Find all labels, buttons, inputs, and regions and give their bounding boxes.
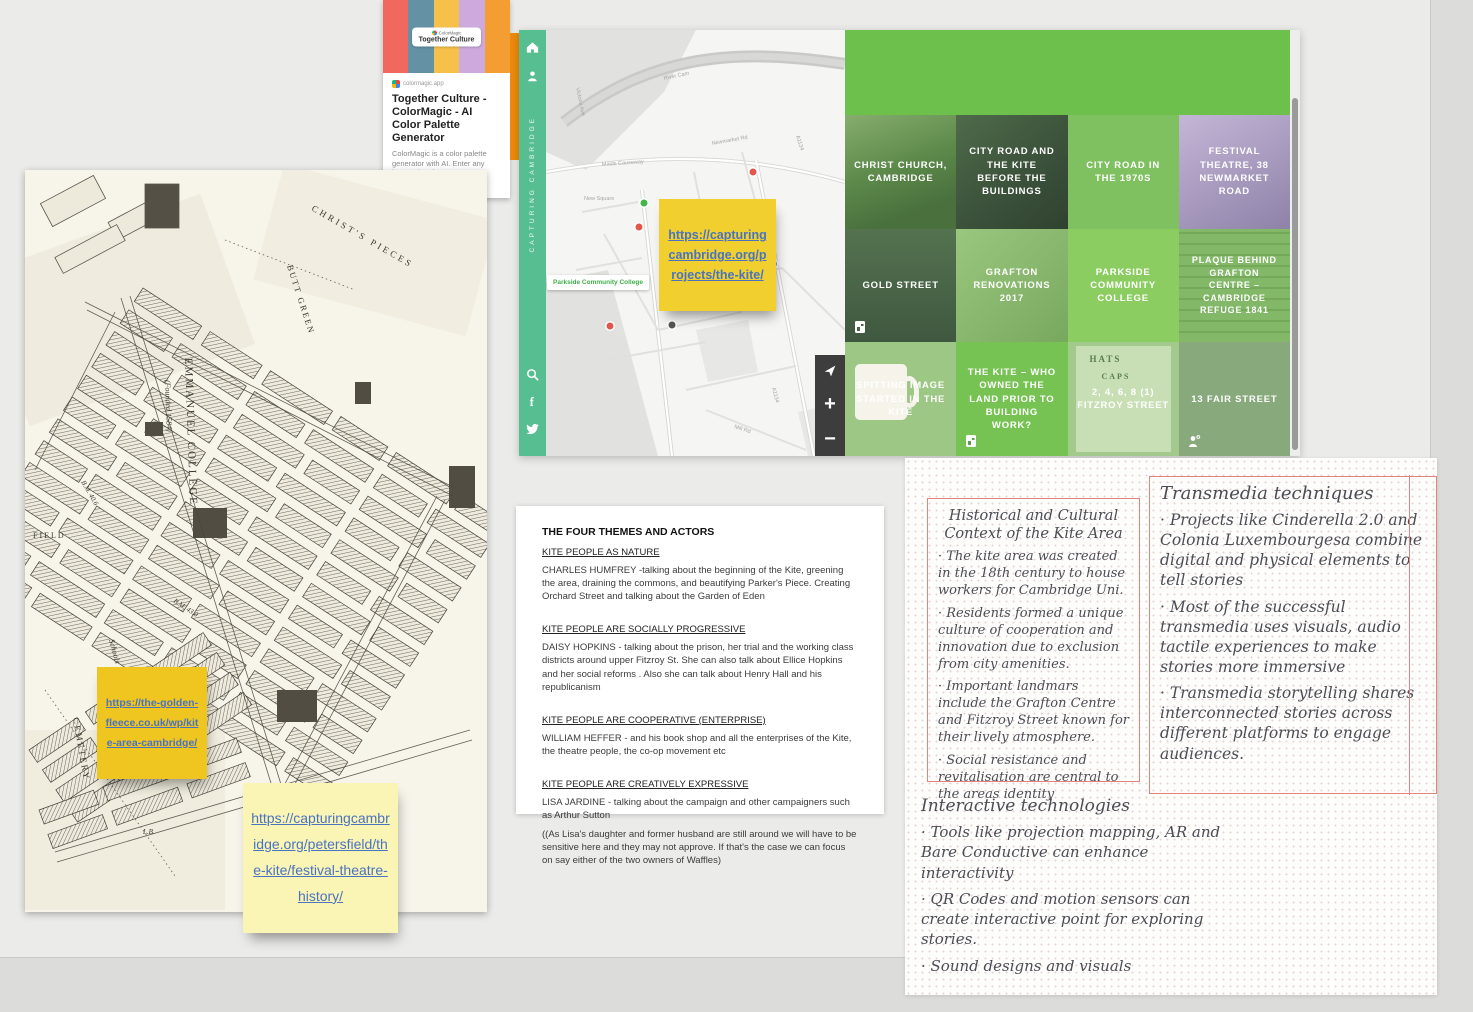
section-body: LISA JARDINE - talking about the campaig…: [542, 796, 858, 822]
palette-label: ColorMagic Together Culture: [412, 27, 482, 46]
compass-icon[interactable]: [822, 363, 838, 379]
golden-fleece-link[interactable]: https://the-golden-fleece.co.uk/wp/kite-…: [106, 697, 199, 749]
section-body: CHARLES HUMFREY -talking about the begin…: [542, 564, 858, 603]
tile-title: CITY ROAD IN THE 1970S: [1068, 115, 1179, 229]
svg-text:f: f: [530, 395, 535, 409]
gallery-tile[interactable]: GRAFTON RENOVATIONS 2017: [956, 229, 1067, 343]
gallery-tile[interactable]: CHRIST CHURCH, CAMBRIDGE: [845, 115, 956, 229]
color-palette-image: ColorMagic Together Culture: [383, 0, 510, 73]
palette-name: Together Culture: [419, 36, 475, 43]
interactive-notes-title: Interactive technologies: [921, 796, 1241, 816]
gallery-tile[interactable]: HATS CAPS 2, 4, 6, 8 (1) FITZROY STREET: [1068, 342, 1179, 456]
section-heading: KITE PEOPLE AS NATURE: [542, 547, 858, 558]
projects-link[interactable]: https://capturingcambridge.org/projects/…: [668, 228, 767, 282]
note-bullet: · Important landmars include the Grafton…: [938, 679, 1129, 747]
twitter-icon[interactable]: [525, 421, 540, 436]
gallery-tile[interactable]: FESTIVAL THEATRE, 38 NEWMARKET ROAD: [1179, 115, 1290, 229]
note-bullet: · Most of the successful transmedia uses…: [1160, 597, 1426, 678]
interactive-notes-block: Interactive technologies · Tools like pr…: [921, 796, 1241, 976]
map-marker-red[interactable]: [635, 223, 643, 231]
gallery-tile[interactable]: SPITTING IMAGE STARTED IN THE KITE: [845, 342, 956, 456]
oldmap-lb-label: L.B.: [142, 828, 155, 836]
section-heading: KITE PEOPLE ARE SOCIALLY PROGRESSIVE: [542, 624, 858, 635]
gallery-tile[interactable]: THE KITE – WHO OWNED THE LAND PRIOR TO B…: [956, 342, 1067, 456]
street-label: New Square: [584, 196, 614, 202]
note-bullet: · Residents formed a unique culture of c…: [938, 606, 1129, 674]
gallery-tile[interactable]: CITY ROAD AND THE KITE BEFORE THE BUILDI…: [956, 115, 1067, 229]
sticky-note-golden-fleece-url[interactable]: https://the-golden-fleece.co.uk/wp/kite-…: [97, 667, 207, 779]
tile-title: SPITTING IMAGE STARTED IN THE KITE: [845, 342, 956, 456]
map-marker-red[interactable]: [606, 322, 614, 330]
gallery-tile[interactable]: CITY ROAD IN THE 1970S: [1068, 115, 1179, 229]
historical-notes-frame: Historical and Cultural Context of the K…: [927, 498, 1140, 782]
section-heading: KITE PEOPLE ARE CREATIVELY EXPRESSIVE: [542, 779, 858, 790]
home-icon[interactable]: [525, 40, 540, 55]
transmedia-notes-frame: Transmedia techniques · Projects like Ci…: [1149, 476, 1437, 794]
article-icon: [964, 434, 978, 448]
frame-inner-line: [1409, 475, 1411, 795]
section-body: ((As Lisa's daughter and former husband …: [542, 828, 858, 867]
gallery-tile[interactable]: PLAQUE BEHIND GRAFTON CENTRE – CAMBRIDGE…: [1179, 229, 1290, 343]
map-controls: + −: [815, 355, 845, 456]
tile-title: GRAFTON RENOVATIONS 2017: [956, 229, 1067, 343]
section-body: DAISY HOPKINS - talking about the prison…: [542, 641, 858, 693]
person-icon: [1187, 434, 1201, 448]
document-title: THE FOUR THEMES AND ACTORS: [542, 526, 858, 538]
map-place-label[interactable]: Parkside Community College: [547, 275, 649, 290]
zoom-out-button[interactable]: −: [824, 429, 836, 449]
zoom-in-button[interactable]: +: [824, 394, 836, 414]
scrollbar-track[interactable]: [1290, 30, 1300, 456]
site-domain: colormagic.app: [403, 81, 444, 87]
four-themes-document[interactable]: THE FOUR THEMES AND ACTORS KITE PEOPLE A…: [516, 506, 884, 814]
tile-title: PLAQUE BEHIND GRAFTON CENTRE – CAMBRIDGE…: [1179, 229, 1290, 343]
section-body: WILLIAM HEFFER - and his book shop and a…: [542, 732, 858, 758]
oldmap-college-sub-label: (Founded 1584): [163, 380, 174, 432]
brand-name: ColorMagic: [439, 30, 462, 35]
note-bullet: · Projects like Cinderella 2.0 and Colon…: [1160, 510, 1426, 591]
note-bullet: · Sound designs and visuals: [921, 956, 1241, 976]
person-pin-icon[interactable]: [525, 69, 540, 84]
map-marker-red[interactable]: [749, 168, 757, 176]
site-favicon-icon: [392, 80, 400, 88]
whiteboard-canvas[interactable]: ColorMagic Together Culture colormagic.a…: [0, 0, 1473, 1012]
section-heading: KITE PEOPLE ARE COOPERATIVE (ENTERPRISE): [542, 715, 858, 726]
map-marker-dark[interactable]: [668, 321, 676, 329]
tile-title: PARKSIDE COMMUNITY COLLEGE: [1068, 229, 1179, 343]
scrollbar-thumb[interactable]: [1292, 98, 1298, 450]
note-bullet: · The kite area was created in the 18th …: [938, 549, 1129, 600]
palette-swatch: [383, 0, 408, 73]
colormagic-link-card[interactable]: ColorMagic Together Culture colormagic.a…: [383, 0, 510, 198]
search-icon[interactable]: [525, 367, 540, 382]
site-title-vertical: CAPTURING CAMBRIDGE: [529, 116, 536, 252]
note-bullet: · Tools like projection mapping, AR and …: [921, 822, 1241, 883]
gallery-tile[interactable]: PARKSIDE COMMUNITY COLLEGE: [1068, 229, 1179, 343]
article-icon: [853, 320, 867, 334]
tile-title: CITY ROAD AND THE KITE BEFORE THE BUILDI…: [956, 115, 1067, 229]
tile-title: 2, 4, 6, 8 (1) FITZROY STREET: [1068, 342, 1179, 456]
colormagic-logo-icon: [432, 30, 437, 35]
orange-accent-strip: [510, 33, 519, 160]
handwritten-notes-panel[interactable]: Historical and Cultural Context of the K…: [905, 458, 1437, 995]
tile-title: FESTIVAL THEATRE, 38 NEWMARKET ROAD: [1179, 115, 1290, 229]
historical-notes-title: Historical and Cultural Context of the K…: [938, 507, 1129, 543]
tile-title: CHRIST CHURCH, CAMBRIDGE: [845, 115, 956, 229]
sticky-note-projects-url[interactable]: https://capturingcambridge.org/projects/…: [659, 199, 776, 311]
note-bullet: · Transmedia storytelling shares interco…: [1160, 683, 1426, 764]
oldmap-field-label: FIELD: [33, 531, 66, 540]
transmedia-notes-title: Transmedia techniques: [1160, 483, 1426, 504]
capturing-cambridge-screenshot[interactable]: CAPTURING CAMBRIDGE f: [519, 30, 1300, 456]
map-marker-green[interactable]: [640, 199, 648, 207]
photo-gallery: CHRIST CHURCH, CAMBRIDGE CITY ROAD AND T…: [845, 30, 1290, 456]
festival-theatre-link[interactable]: https://capturingcambridge.org/petersfie…: [251, 810, 390, 904]
sticky-note-festival-theatre-url[interactable]: https://capturingcambridge.org/petersfie…: [243, 783, 398, 933]
palette-swatch: [485, 0, 510, 73]
site-sidebar: CAPTURING CAMBRIDGE f: [519, 30, 546, 456]
card-title[interactable]: Together Culture - ColorMagic - AI Color…: [392, 93, 501, 145]
facebook-icon[interactable]: f: [525, 394, 540, 409]
note-bullet: · QR Codes and motion sensors can create…: [921, 889, 1241, 950]
gallery-tile[interactable]: 13 FAIR STREET: [1179, 342, 1290, 456]
gallery-tile[interactable]: GOLD STREET: [845, 229, 956, 343]
